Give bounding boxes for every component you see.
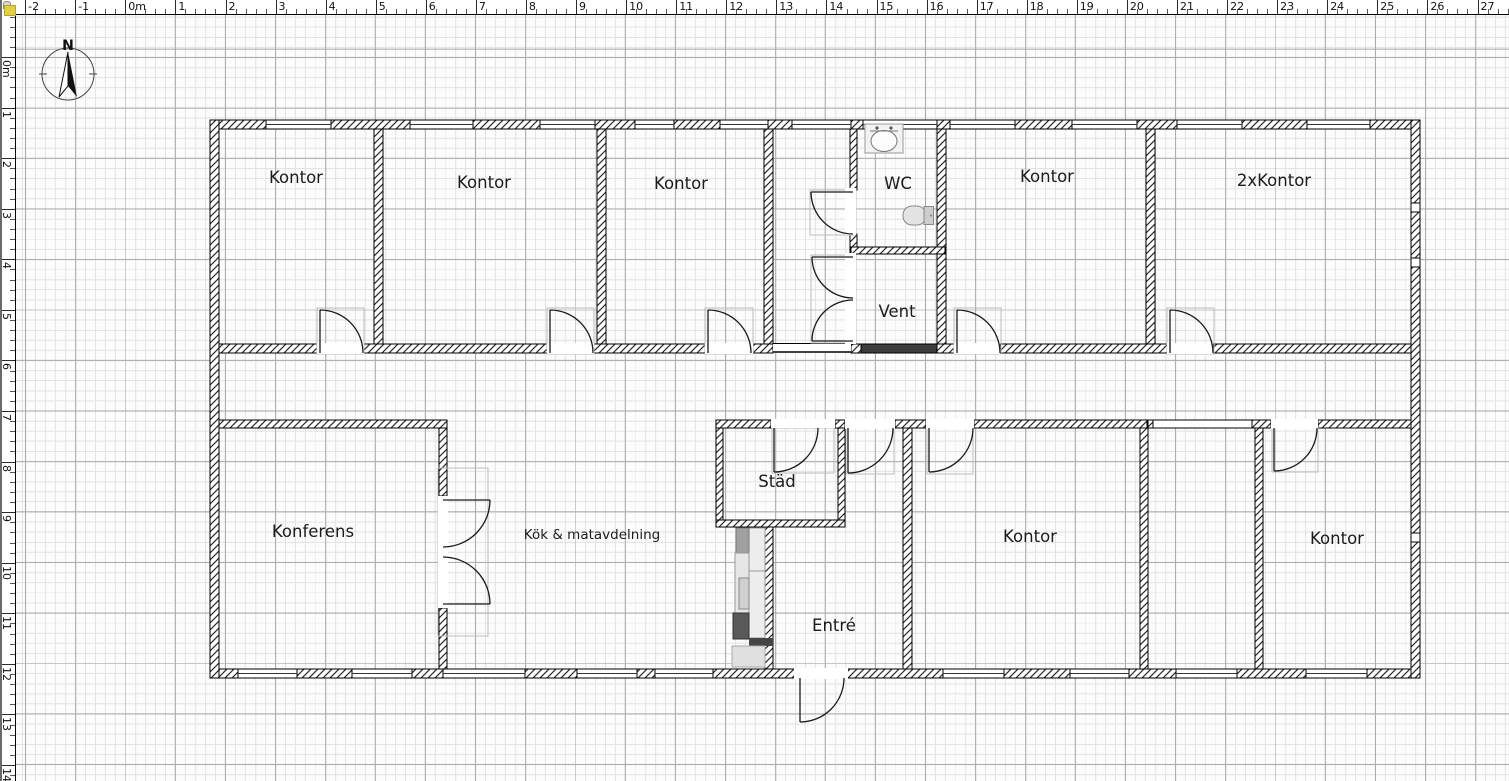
ruler-minor-tick bbox=[1097, 9, 1098, 14]
ruler-metre-line bbox=[526, 0, 527, 14]
room-label-kontor-2[interactable]: Kontor bbox=[457, 173, 511, 192]
ruler-metre-line bbox=[125, 0, 126, 14]
ruler-minor-tick bbox=[10, 451, 15, 452]
ruler-label-h-19: 19 bbox=[1080, 0, 1094, 13]
ruler-label-h-8: 8 bbox=[529, 0, 536, 13]
ruler-minor-tick bbox=[10, 199, 15, 200]
ruler-minor-tick bbox=[957, 9, 958, 14]
ruler-label-h-14: 14 bbox=[829, 0, 843, 13]
room-label-kontor-5[interactable]: Kontor bbox=[1003, 527, 1057, 546]
ruler-minor-tick bbox=[10, 694, 15, 695]
ruler-minor-tick bbox=[506, 9, 507, 14]
ruler-minor-tick bbox=[10, 178, 15, 179]
ruler-label-h-12: 12 bbox=[729, 0, 743, 13]
ruler-minor-tick bbox=[236, 9, 237, 14]
room-label-wc[interactable]: WC bbox=[884, 174, 912, 193]
ruler-minor-tick bbox=[10, 280, 15, 281]
ruler-minor-tick bbox=[10, 148, 15, 149]
ruler-minor-tick bbox=[10, 583, 15, 584]
ruler-label-h-0m: 0m bbox=[128, 0, 146, 13]
ruler-metre-line bbox=[0, 360, 15, 361]
ruler-minor-tick bbox=[1457, 9, 1458, 14]
ruler-minor-tick bbox=[10, 381, 15, 382]
ruler-metre-line bbox=[1177, 0, 1178, 14]
ruler-minor-tick bbox=[10, 441, 15, 442]
ruler-minor-tick bbox=[336, 9, 337, 14]
ruler-minor-tick bbox=[10, 98, 15, 99]
ruler-minor-tick bbox=[346, 9, 347, 14]
ruler-minor-tick bbox=[10, 603, 15, 604]
ruler-minor-tick bbox=[10, 735, 15, 736]
ruler-metre-line bbox=[476, 0, 477, 14]
ruler-label-h-22: 22 bbox=[1230, 0, 1244, 13]
room-label-kontor-3[interactable]: Kontor bbox=[654, 174, 708, 193]
ruler-minor-tick bbox=[406, 9, 407, 14]
ruler-minor-tick bbox=[10, 543, 15, 544]
ruler-minor-tick bbox=[10, 168, 15, 169]
ruler-metre-line bbox=[1478, 0, 1479, 14]
ruler-label-h-23: 23 bbox=[1280, 0, 1294, 13]
ruler-minor-tick bbox=[10, 189, 15, 190]
ruler-label-h-11: 11 bbox=[679, 0, 693, 13]
ruler-minor-tick bbox=[95, 9, 96, 14]
ruler-minor-tick bbox=[215, 9, 216, 14]
ruler-metre-line bbox=[426, 0, 427, 14]
ruler-metre-line bbox=[626, 0, 627, 14]
ruler-minor-tick bbox=[616, 9, 617, 14]
ruler-metre-line bbox=[1327, 0, 1328, 14]
ruler-minor-tick bbox=[466, 9, 467, 14]
ruler-minor-tick bbox=[1207, 9, 1208, 14]
ruler-metre-line bbox=[226, 0, 227, 14]
ruler-minor-tick bbox=[516, 9, 517, 14]
ruler-minor-tick bbox=[536, 9, 537, 14]
ruler-minor-tick bbox=[55, 9, 56, 14]
ruler-minor-tick bbox=[115, 9, 116, 14]
stove bbox=[733, 613, 749, 639]
ruler-minor-tick bbox=[10, 755, 15, 756]
ruler-minor-tick bbox=[716, 9, 717, 14]
ruler-metre-line bbox=[75, 0, 76, 14]
ruler-minor-tick bbox=[1117, 9, 1118, 14]
room-label-kontor-1[interactable]: Kontor bbox=[269, 168, 323, 187]
ruler-minor-tick bbox=[316, 9, 317, 14]
ruler-minor-tick bbox=[10, 644, 15, 645]
ruler-metre-line bbox=[826, 0, 827, 14]
ruler-metre-line bbox=[0, 209, 15, 210]
ruler-minor-tick bbox=[586, 9, 587, 14]
ruler-minor-tick bbox=[1147, 9, 1148, 14]
ruler-metre-line bbox=[326, 0, 327, 14]
ruler-minor-tick bbox=[1447, 9, 1448, 14]
ruler-minor-tick bbox=[1217, 9, 1218, 14]
ruler-label-h-13: 13 bbox=[779, 0, 793, 13]
ruler-metre-line bbox=[0, 664, 15, 665]
ruler-minor-tick bbox=[10, 532, 15, 533]
ruler-metre-line bbox=[0, 158, 15, 159]
ruler-metre-line bbox=[776, 0, 777, 14]
ruler-metre-line bbox=[1127, 0, 1128, 14]
ruler-label-h--2: -2 bbox=[28, 0, 39, 13]
room-label-2xkontor[interactable]: 2xKontor bbox=[1237, 171, 1311, 190]
ruler-minor-tick bbox=[917, 9, 918, 14]
ruler-minor-tick bbox=[386, 9, 387, 14]
ruler-minor-tick bbox=[165, 9, 166, 14]
ruler-minor-tick bbox=[907, 9, 908, 14]
ruler-minor-tick bbox=[306, 9, 307, 14]
ruler-minor-tick bbox=[446, 9, 447, 14]
ruler-metre-line bbox=[1377, 0, 1378, 14]
ruler-minor-tick bbox=[756, 9, 757, 14]
ruler-metre-line bbox=[0, 765, 15, 766]
ruler-minor-tick bbox=[606, 9, 607, 14]
ruler-minor-tick bbox=[1357, 9, 1358, 14]
ruler-minor-tick bbox=[1467, 9, 1468, 14]
ruler-minor-tick bbox=[766, 9, 767, 14]
ruler-minor-tick bbox=[416, 9, 417, 14]
ruler-minor-tick bbox=[10, 330, 15, 331]
ruler-label-h-27: 27 bbox=[1481, 0, 1495, 13]
ruler-metre-line bbox=[0, 411, 15, 412]
ruler-metre-line bbox=[977, 0, 978, 14]
ruler-minor-tick bbox=[10, 37, 15, 38]
ruler-metre-line bbox=[0, 259, 15, 260]
ruler-label-h-18: 18 bbox=[1030, 0, 1044, 13]
ruler-minor-tick bbox=[246, 9, 247, 14]
ruler-minor-tick bbox=[556, 9, 557, 14]
ruler-minor-tick bbox=[205, 9, 206, 14]
ruler-minor-tick bbox=[857, 9, 858, 14]
ruler-minor-tick bbox=[847, 9, 848, 14]
ruler-label-h-3: 3 bbox=[279, 0, 286, 13]
ruler-minor-tick bbox=[10, 290, 15, 291]
ruler-minor-tick bbox=[10, 431, 15, 432]
ruler-minor-tick bbox=[10, 421, 15, 422]
ruler-minor-tick bbox=[185, 9, 186, 14]
ruler-minor-tick bbox=[867, 9, 868, 14]
ruler-minor-tick bbox=[816, 9, 817, 14]
ruler-minor-tick bbox=[496, 9, 497, 14]
ruler-minor-tick bbox=[45, 9, 46, 14]
ruler-minor-tick bbox=[1007, 9, 1008, 14]
ruler-minor-tick bbox=[1307, 9, 1308, 14]
ruler-metre-line bbox=[0, 108, 15, 109]
exterior-walls[interactable] bbox=[210, 120, 1420, 678]
ruler-label-h-16: 16 bbox=[930, 0, 944, 13]
doors[interactable] bbox=[317, 188, 1318, 722]
ruler-minor-tick bbox=[1047, 9, 1048, 14]
ruler-label-h-5: 5 bbox=[379, 0, 386, 13]
ruler-label-h-1: 1 bbox=[178, 0, 185, 13]
horizontal-ruler[interactable]: -2-10m1234567891011121314151617181920212… bbox=[16, 0, 1509, 15]
ruler-minor-tick bbox=[10, 87, 15, 88]
ruler-minor-tick bbox=[266, 9, 267, 14]
ruler-metre-line bbox=[676, 0, 677, 14]
ruler-minor-tick bbox=[10, 745, 15, 746]
ruler-minor-tick bbox=[10, 269, 15, 270]
ruler-minor-tick bbox=[997, 9, 998, 14]
ruler-minor-tick bbox=[596, 9, 597, 14]
ruler-metre-line bbox=[0, 310, 15, 311]
ruler-minor-tick bbox=[646, 9, 647, 14]
ruler-minor-tick bbox=[1267, 9, 1268, 14]
ruler-label-h-26: 26 bbox=[1430, 0, 1444, 13]
ruler-minor-tick bbox=[436, 9, 437, 14]
room-label-konferens[interactable]: Konferens bbox=[272, 522, 354, 541]
ruler-metre-line bbox=[726, 0, 727, 14]
ruler-minor-tick bbox=[1417, 9, 1418, 14]
ruler-minor-tick bbox=[10, 391, 15, 392]
ruler-minor-tick bbox=[10, 553, 15, 554]
window-edge bbox=[0, 0, 2, 781]
vertical-ruler[interactable]: 0m1234567891011121314 bbox=[0, 15, 16, 781]
ruler-metre-line bbox=[0, 57, 15, 58]
ruler-minor-tick bbox=[1367, 9, 1368, 14]
ruler-minor-tick bbox=[195, 9, 196, 14]
ruler-minor-tick bbox=[1167, 9, 1168, 14]
ruler-minor-tick bbox=[746, 9, 747, 14]
ruler-label-h-20: 20 bbox=[1130, 0, 1144, 13]
ruler-minor-tick bbox=[1057, 9, 1058, 14]
ruler-minor-tick bbox=[356, 9, 357, 14]
ruler-minor-tick bbox=[10, 128, 15, 129]
ruler-minor-tick bbox=[256, 9, 257, 14]
ruler-minor-tick bbox=[1297, 9, 1298, 14]
ruler-minor-tick bbox=[10, 522, 15, 523]
ruler-minor-tick bbox=[10, 684, 15, 685]
ruler-label-h-4: 4 bbox=[329, 0, 336, 13]
ruler-minor-tick bbox=[1407, 9, 1408, 14]
ruler-label-h--1: -1 bbox=[78, 0, 89, 13]
ruler-minor-tick bbox=[1347, 9, 1348, 14]
plan-editor-window: N Kontor Kontor Kontor WC Vent Kontor 2x… bbox=[0, 0, 1509, 781]
ruler-minor-tick bbox=[10, 138, 15, 139]
ruler-minor-tick bbox=[10, 27, 15, 28]
ruler-metre-line bbox=[877, 0, 878, 14]
ruler-minor-tick bbox=[10, 17, 15, 18]
ruler-metre-line bbox=[1427, 0, 1428, 14]
ruler-minor-tick bbox=[1157, 9, 1158, 14]
ruler-minor-tick bbox=[396, 9, 397, 14]
ruler-minor-tick bbox=[967, 9, 968, 14]
ruler-minor-tick bbox=[456, 9, 457, 14]
ruler-minor-tick bbox=[1508, 9, 1509, 14]
ruler-minor-tick bbox=[10, 249, 15, 250]
ruler-metre-line bbox=[1227, 0, 1228, 14]
room-label-entre[interactable]: Entré bbox=[812, 616, 856, 635]
ruler-minor-tick bbox=[1017, 9, 1018, 14]
ruler-minor-tick bbox=[10, 350, 15, 351]
ruler-minor-tick bbox=[105, 9, 106, 14]
ruler-minor-tick bbox=[1067, 9, 1068, 14]
compass-north-label: N bbox=[62, 38, 74, 54]
compass-needle-icon bbox=[68, 52, 77, 97]
windows[interactable] bbox=[238, 120, 1420, 678]
ruler-minor-tick bbox=[546, 9, 547, 14]
room-label-kok[interactable]: Kök & matavdelning bbox=[524, 527, 660, 543]
ruler-minor-tick bbox=[10, 320, 15, 321]
ruler-minor-tick bbox=[10, 634, 15, 635]
ruler-minor-tick bbox=[1317, 9, 1318, 14]
room-label-kontor-4[interactable]: Kontor bbox=[1020, 167, 1074, 186]
ruler-minor-tick bbox=[566, 9, 567, 14]
ruler-minor-tick bbox=[696, 9, 697, 14]
ruler-minor-tick bbox=[65, 9, 66, 14]
ruler-minor-tick bbox=[10, 229, 15, 230]
ruler-label-h-9: 9 bbox=[579, 0, 586, 13]
ruler-minor-tick bbox=[1197, 9, 1198, 14]
ruler-minor-tick bbox=[10, 340, 15, 341]
ruler-label-h-21: 21 bbox=[1180, 0, 1194, 13]
ruler-metre-line bbox=[0, 462, 15, 463]
ruler-minor-tick bbox=[10, 654, 15, 655]
ruler-minor-tick bbox=[486, 9, 487, 14]
room-label-stad[interactable]: Städ bbox=[758, 472, 796, 491]
ruler-metre-line bbox=[1077, 0, 1078, 14]
wc-sink[interactable] bbox=[865, 124, 903, 153]
ruler-label-h-24: 24 bbox=[1330, 0, 1344, 13]
ruler-minor-tick bbox=[1498, 9, 1499, 14]
ruler-label-h-6: 6 bbox=[429, 0, 436, 13]
ruler-minor-tick bbox=[296, 9, 297, 14]
ruler-minor-tick bbox=[947, 9, 948, 14]
ruler-minor-tick bbox=[366, 9, 367, 14]
ruler-metre-line bbox=[276, 0, 277, 14]
ruler-minor-tick bbox=[1257, 9, 1258, 14]
ruler-minor-tick bbox=[796, 9, 797, 14]
ruler-metre-line bbox=[175, 0, 176, 14]
ruler-minor-tick bbox=[10, 47, 15, 48]
ruler-minor-tick bbox=[1107, 9, 1108, 14]
ruler-minor-tick bbox=[10, 371, 15, 372]
ruler-corner bbox=[0, 0, 16, 15]
room-label-vent[interactable]: Vent bbox=[878, 302, 916, 321]
room-label-kontor-6[interactable]: Kontor bbox=[1310, 529, 1364, 548]
ruler-minor-tick bbox=[1247, 9, 1248, 14]
ruler-metre-line bbox=[1277, 0, 1278, 14]
ruler-metre-line bbox=[25, 0, 26, 14]
ruler-minor-tick bbox=[1397, 9, 1398, 14]
ruler-label-h-17: 17 bbox=[980, 0, 994, 13]
ruler-minor-tick bbox=[10, 239, 15, 240]
ruler-minor-tick bbox=[10, 401, 15, 402]
ruler-label-h-7: 7 bbox=[479, 0, 486, 13]
ruler-metre-line bbox=[576, 0, 577, 14]
ruler-minor-tick bbox=[10, 502, 15, 503]
ruler-minor-tick bbox=[155, 9, 156, 14]
ruler-metre-line bbox=[927, 0, 928, 14]
ruler-minor-tick bbox=[806, 9, 807, 14]
floor-plan[interactable]: N Kontor Kontor Kontor WC Vent Kontor 2x… bbox=[0, 0, 1509, 781]
ruler-label-h-2: 2 bbox=[229, 0, 236, 13]
ruler-metre-line bbox=[1027, 0, 1028, 14]
origin-marker-icon bbox=[2, 1, 14, 14]
ruler-minor-tick bbox=[706, 9, 707, 14]
ruler-minor-tick bbox=[656, 9, 657, 14]
wc-toilet[interactable] bbox=[903, 206, 934, 225]
ruler-metre-line bbox=[376, 0, 377, 14]
ruler-minor-tick bbox=[666, 9, 667, 14]
ruler-minor-tick bbox=[286, 9, 287, 14]
ruler-metre-line bbox=[0, 512, 15, 513]
compass[interactable]: N bbox=[39, 38, 97, 100]
ruler-minor-tick bbox=[10, 482, 15, 483]
ruler-minor-tick bbox=[10, 593, 15, 594]
ruler-minor-tick bbox=[10, 704, 15, 705]
ruler-minor-tick bbox=[897, 9, 898, 14]
ruler-metre-line bbox=[0, 613, 15, 614]
ruler-minor-tick bbox=[10, 300, 15, 301]
ruler-label-h-10: 10 bbox=[629, 0, 643, 13]
ruler-metre-line bbox=[0, 714, 15, 715]
ruler-label-h-25: 25 bbox=[1380, 0, 1394, 13]
ruler-label-h-15: 15 bbox=[880, 0, 894, 13]
ruler-metre-line bbox=[0, 563, 15, 564]
ruler-minor-tick bbox=[10, 492, 15, 493]
